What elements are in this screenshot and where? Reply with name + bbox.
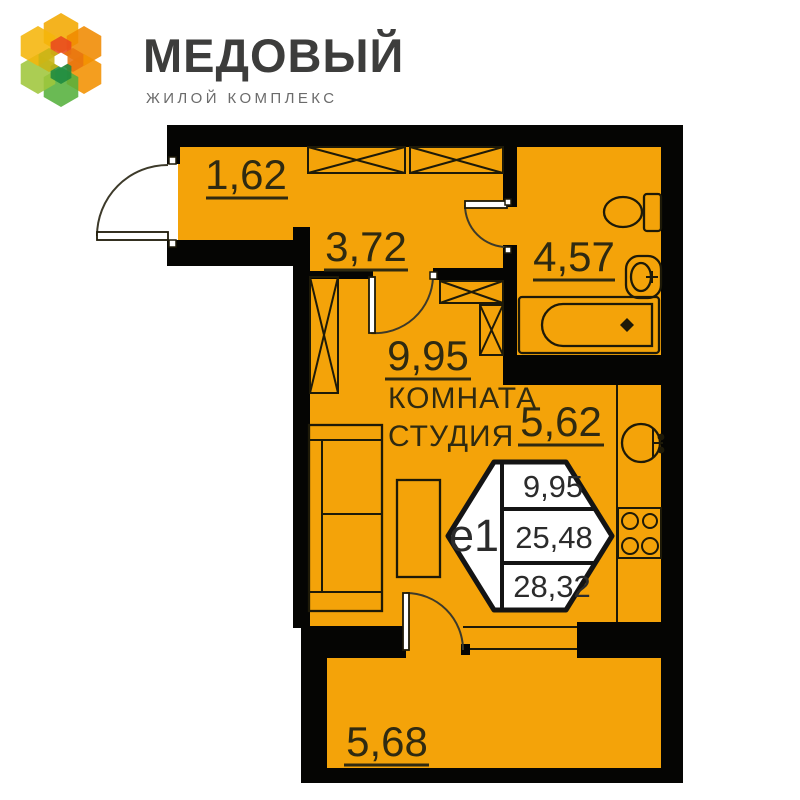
entry-door-jamb-top xyxy=(169,157,176,164)
brand-name: МЕДОВЫЙ xyxy=(143,29,404,82)
entry-door xyxy=(97,157,176,247)
balcony-door-leaf xyxy=(403,593,409,650)
badge-living-area: 9,95 xyxy=(523,469,583,504)
badge-total-area: 28,32 xyxy=(513,569,591,604)
kitchen-faucet-knob xyxy=(658,447,665,454)
badge-unit-type: е1 xyxy=(449,510,499,561)
entry-door-leaf xyxy=(97,232,168,240)
wall-top xyxy=(167,125,683,147)
area-balcony: 5,68 xyxy=(346,718,428,765)
area-room: 9,95 xyxy=(387,332,469,379)
area-entry: 1,62 xyxy=(205,151,287,198)
area-hallway: 3,72 xyxy=(325,223,407,270)
wall-bathroom-bottom xyxy=(503,355,683,385)
room-label-line2: СТУДИЯ xyxy=(388,420,514,453)
wall-niche-right xyxy=(433,268,517,280)
bathroom-door-jamb-top xyxy=(505,199,511,205)
room-door-leaf xyxy=(369,277,375,333)
kitchen-faucet-knob xyxy=(658,434,665,441)
badge-apartment-area: 25,48 xyxy=(515,520,593,555)
wall-bathroom-left-upper xyxy=(503,147,517,207)
floor-plan-canvas: МЕДОВЫЙ ЖИЛОЙ КОМПЛЕКС xyxy=(0,0,800,800)
wall-entry-bottom xyxy=(167,240,310,266)
room-label-line1: КОМНАТА xyxy=(388,382,537,415)
bathroom-door-leaf xyxy=(465,201,507,208)
area-bathroom: 4,57 xyxy=(533,233,615,280)
brand-tagline: ЖИЛОЙ КОМПЛЕКС xyxy=(146,89,337,107)
apartment-floor xyxy=(178,125,683,783)
wall-bathroom-left-lower xyxy=(503,245,517,358)
entry-door-jamb-bottom xyxy=(169,240,176,247)
room-door-jamb xyxy=(430,272,437,279)
logo-flower-icon xyxy=(21,13,102,107)
floor-plan-page: МЕДОВЫЙ ЖИЛОЙ КОМПЛЕКС xyxy=(0,0,800,800)
wall-main-left xyxy=(293,227,310,628)
wall-balcony-bottom xyxy=(301,768,683,783)
wall-balcony-band-left xyxy=(301,626,406,658)
entry-door-arc xyxy=(97,165,168,236)
wall-right xyxy=(661,125,683,783)
wall-balcony-band-right xyxy=(577,622,683,658)
bathroom-door-jamb-bottom xyxy=(505,247,511,253)
brand-logo: МЕДОВЫЙ ЖИЛОЙ КОМПЛЕКС xyxy=(21,13,405,107)
